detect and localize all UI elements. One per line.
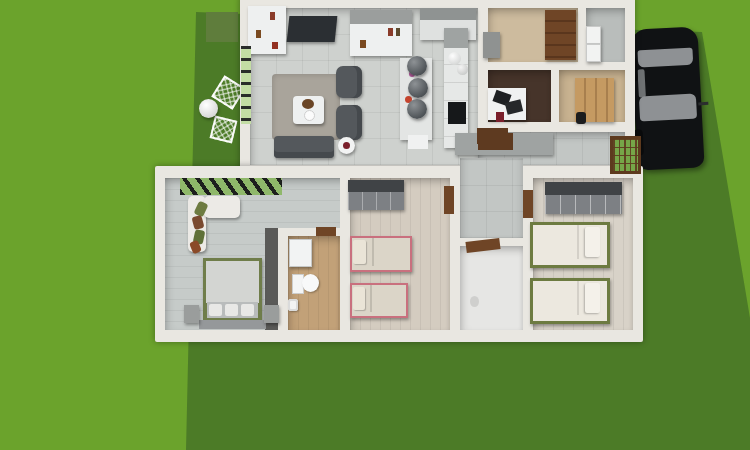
pillow — [225, 304, 238, 316]
twin-bed[interactable] — [530, 222, 610, 268]
globe-light[interactable] — [199, 99, 218, 118]
corner-sofa-horizontal[interactable] — [204, 196, 240, 218]
bed-fold — [372, 238, 374, 266]
bed-pillow — [353, 287, 365, 310]
wall-kitchen-rooms — [478, 8, 488, 132]
pillow — [241, 304, 254, 316]
armchair[interactable] — [336, 105, 362, 140]
wall-cabinet[interactable] — [350, 10, 412, 56]
pendant-ball[interactable] — [407, 56, 427, 76]
book — [256, 30, 261, 38]
bidet[interactable] — [288, 299, 298, 311]
master-bed-base — [199, 320, 266, 329]
table-plant — [302, 99, 314, 109]
kids-wardrobe[interactable] — [348, 180, 404, 210]
toilet-bowl[interactable] — [302, 274, 319, 292]
shower-room-floor — [460, 246, 523, 330]
twin-wardrobe[interactable] — [545, 182, 622, 214]
bed-fold — [577, 281, 579, 315]
sink-cabinet[interactable] — [289, 239, 312, 267]
book — [360, 40, 366, 48]
entry-cabinet[interactable] — [483, 32, 500, 58]
wall-office-closet — [551, 70, 559, 122]
book — [396, 28, 400, 36]
appliance[interactable] — [586, 26, 601, 44]
armchair[interactable] — [336, 66, 362, 98]
bathroom1-door[interactable] — [316, 227, 336, 236]
bed-fold — [577, 225, 579, 259]
master-slatted-window[interactable] — [180, 178, 282, 195]
closet-dark-bag[interactable] — [576, 112, 586, 124]
car-windshield — [637, 48, 693, 68]
book — [388, 28, 393, 36]
pendant-ball[interactable] — [408, 78, 428, 98]
kids-bedroom-door[interactable] — [444, 186, 454, 214]
entry-wardrobe[interactable] — [545, 10, 576, 60]
round-side-table[interactable] — [338, 137, 355, 154]
book — [272, 42, 278, 49]
twin-bed[interactable] — [530, 278, 610, 324]
kitchen-tall-counter[interactable] — [444, 28, 468, 148]
master-duvet — [206, 261, 259, 303]
tv-panel[interactable] — [287, 16, 338, 42]
decor-vase[interactable] — [457, 64, 468, 75]
decor-vase[interactable] — [448, 52, 461, 65]
corridor-floor — [460, 158, 523, 238]
pink-bed-large[interactable] — [350, 236, 412, 272]
wall-master-bath — [278, 236, 288, 330]
pink-bed-small[interactable] — [350, 283, 408, 318]
side-table-decor — [343, 142, 350, 149]
twin-bedroom-door[interactable] — [523, 190, 533, 218]
pendant-ball[interactable] — [407, 99, 427, 119]
bed-pillow — [353, 240, 366, 264]
shower-drain — [470, 296, 479, 307]
hall-doormat[interactable] — [477, 128, 508, 144]
sofa[interactable] — [274, 136, 334, 158]
lawn-olive-square — [206, 12, 238, 42]
hall-green-window[interactable] — [610, 136, 641, 174]
car-rear-window — [639, 94, 697, 122]
wall-above-hall — [488, 122, 625, 132]
car-mirror — [698, 102, 708, 106]
wall-entry-utility — [578, 8, 586, 62]
appliance[interactable] — [586, 44, 601, 62]
car-side-window — [637, 69, 645, 97]
bed-pillow — [585, 227, 600, 257]
table-dish — [304, 110, 315, 121]
bed-fold — [370, 285, 372, 312]
nightstand[interactable] — [184, 305, 199, 323]
living-window-shutters[interactable] — [241, 46, 251, 124]
pillow — [209, 304, 222, 316]
car[interactable] — [630, 26, 704, 170]
floor-plan-render — [0, 0, 750, 450]
nightstand[interactable] — [264, 305, 279, 323]
cooktop — [448, 102, 466, 124]
bed-pillow — [585, 283, 600, 313]
wall-shelf-books[interactable] — [248, 6, 286, 54]
island-extension — [408, 135, 428, 149]
office-red-stool[interactable] — [496, 112, 504, 122]
master-bed[interactable] — [203, 258, 262, 322]
book — [270, 12, 275, 20]
coffee-table[interactable] — [293, 96, 324, 124]
wall-below-entry — [488, 62, 625, 70]
